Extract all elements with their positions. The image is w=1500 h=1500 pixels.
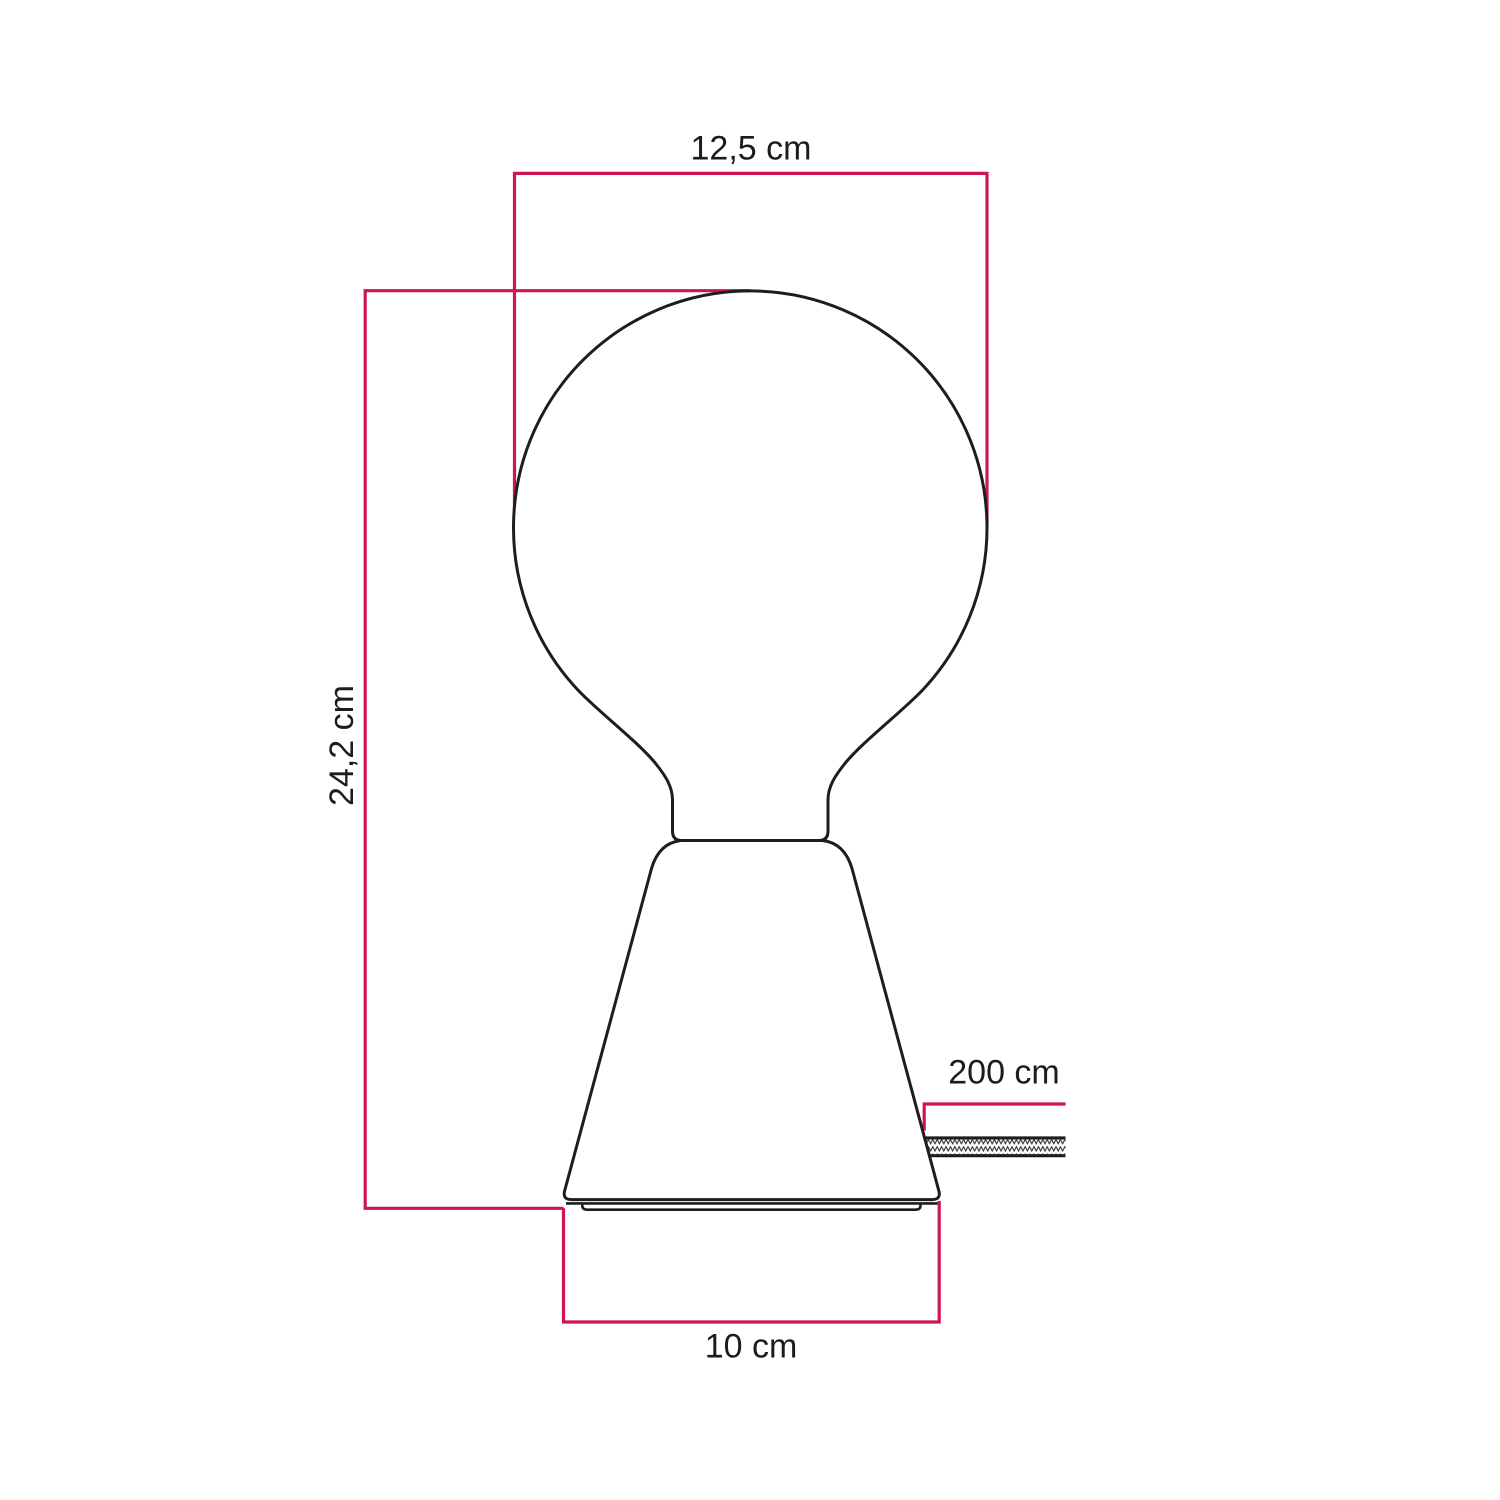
svg-text:10 cm: 10 cm bbox=[705, 1328, 798, 1366]
svg-text:200 cm: 200 cm bbox=[948, 1053, 1060, 1091]
svg-text:24,2 cm: 24,2 cm bbox=[323, 685, 361, 806]
svg-text:12,5 cm: 12,5 cm bbox=[691, 130, 812, 168]
